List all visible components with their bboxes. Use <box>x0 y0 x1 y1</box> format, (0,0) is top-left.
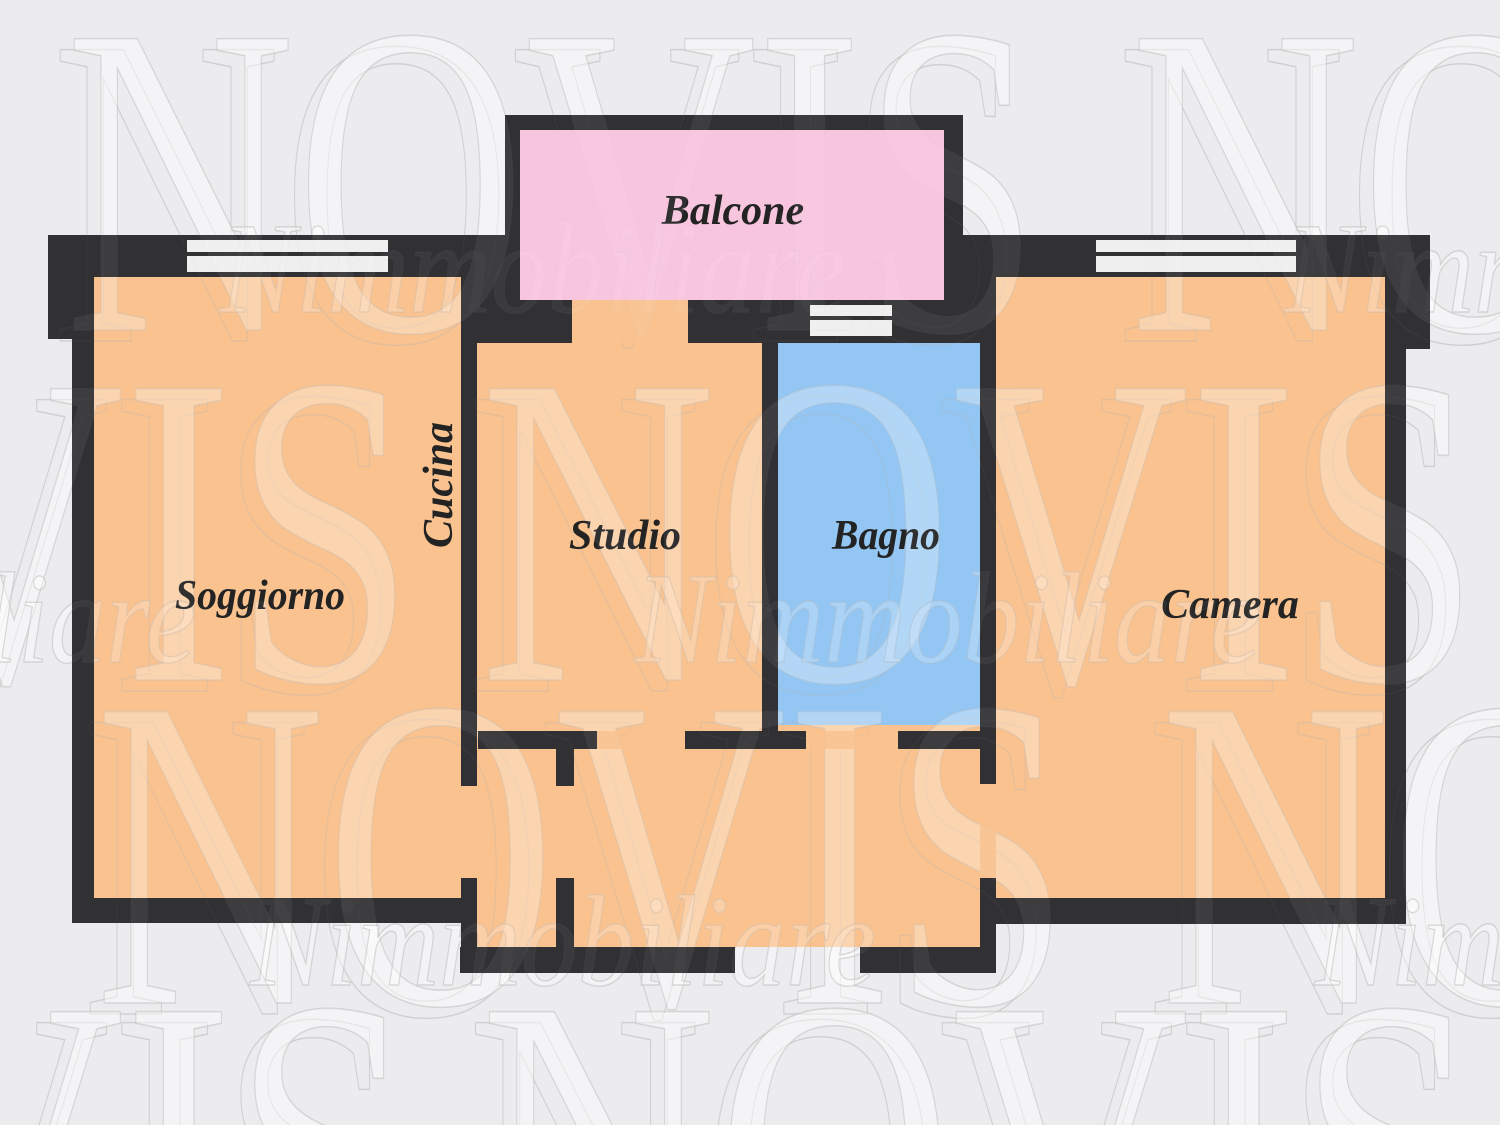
svg-text:Cucina: Cucina <box>416 422 462 548</box>
